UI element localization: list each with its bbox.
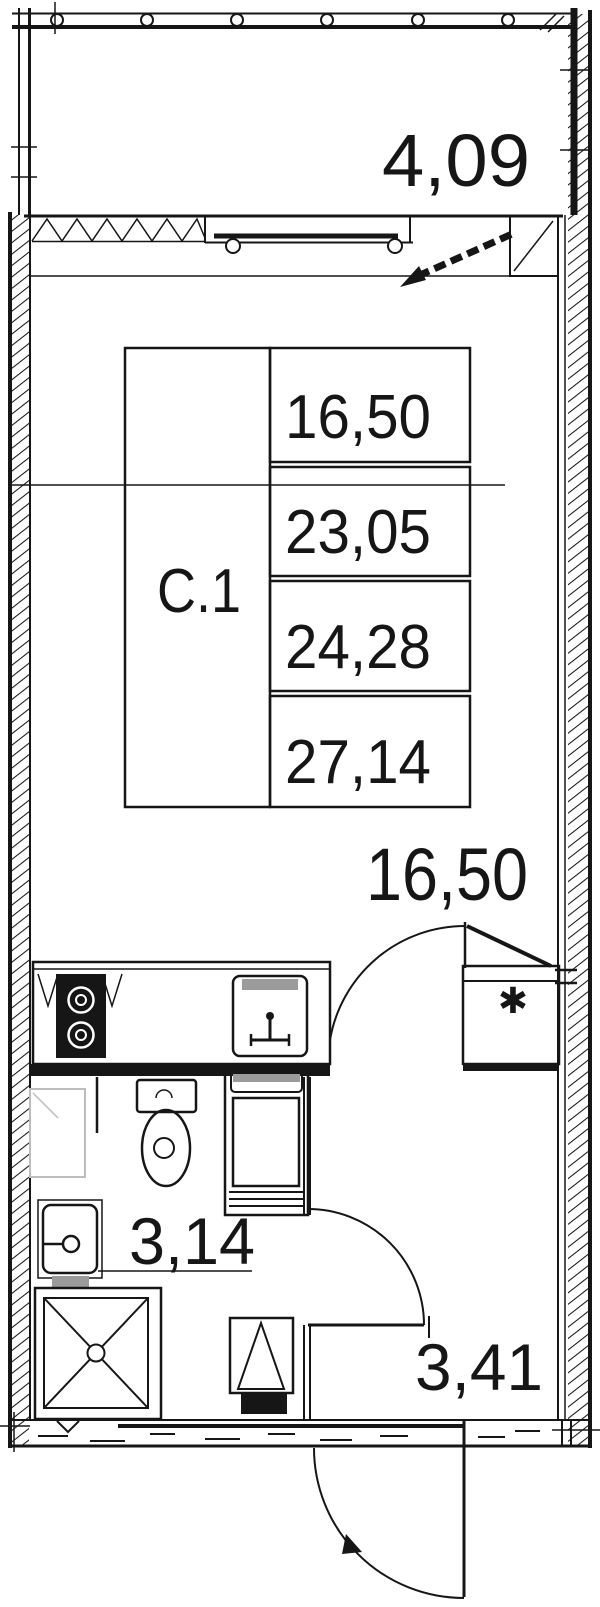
right-wall-hatch [568,14,588,1446]
unit-type-label: С.1 [157,557,241,626]
right-wall-outer-line [588,10,592,1448]
area-value: 16,50 [285,383,431,452]
area-value: 23,05 [285,498,431,567]
hallway-area-label: 3,41 [415,1330,543,1404]
area-value: 27,14 [285,728,431,797]
left-wall-outer-line [8,212,12,1448]
balcony-area-label: 4,09 [382,119,530,202]
closet-marker: ✱ [498,980,528,1021]
floor-plan-drawing: 4,09 [0,0,600,1607]
living-room-area-label: 16,50 [366,833,528,916]
floor-plan-page: 4,09 [0,0,600,1607]
bathroom-area-label: 3,14 [129,1204,255,1278]
area-value: 24,28 [285,613,431,682]
left-wall-hatch [12,215,29,1446]
